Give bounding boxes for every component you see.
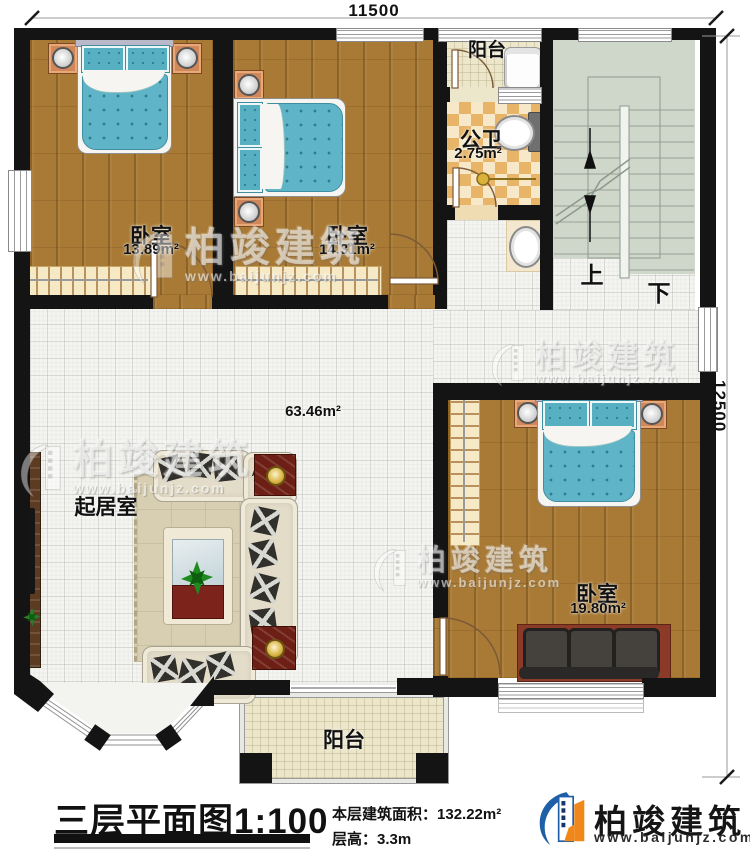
floor-plan: 卧室 13.89m² 卧室 14.31m² 公卫 2.75m² 阳台 起居室 6…	[0, 0, 750, 860]
floor-area-label: 本层建筑面积：	[332, 806, 437, 823]
plant-icon	[181, 561, 213, 595]
door-leaf	[440, 618, 446, 675]
stair-down-label: 下	[648, 274, 671, 308]
bathroom-area: 2.75m²	[454, 145, 502, 162]
plant-icon	[23, 608, 41, 627]
door-arc	[443, 618, 500, 675]
bedroom1-area: 13.89m²	[123, 241, 179, 258]
stair-direction-arrows	[585, 128, 595, 242]
floor-area-value: 132.22m²	[437, 806, 501, 823]
door-leaf	[453, 168, 459, 207]
floor-height-text: 层高：3.3m	[332, 828, 411, 849]
dimension-right: 12500	[709, 380, 729, 432]
balcony-top-label: 阳台	[468, 35, 506, 62]
door-arcs	[155, 50, 500, 675]
bedroom3-area: 19.80m²	[570, 600, 626, 617]
title-underline	[54, 834, 310, 843]
living-label: 起居室	[75, 491, 138, 521]
stair-stringer	[620, 106, 629, 278]
door-leaf	[452, 50, 458, 88]
dimension-top: 11500	[348, 1, 399, 21]
door-leaf	[390, 278, 438, 284]
faucet-icon	[477, 173, 489, 185]
brand-site: www.baijunjz.com	[594, 829, 750, 845]
stair-up-label: 上	[581, 256, 604, 290]
floor-area-text: 本层建筑面积：132.22m²	[332, 803, 501, 824]
balcony-bottom-label: 阳台	[323, 724, 365, 754]
title-underline-thin	[54, 847, 310, 849]
floor-height-label: 层高：	[332, 831, 377, 848]
door-arc	[390, 234, 438, 282]
floor-height-value: 3.3m	[377, 831, 411, 848]
brand-logo-icon	[534, 791, 590, 849]
living-area: 63.46m²	[285, 403, 341, 420]
plan-linework	[0, 0, 750, 860]
bedroom2-area: 14.31m²	[319, 241, 375, 258]
dimension-lines	[32, 18, 740, 777]
door-arc	[457, 168, 496, 207]
